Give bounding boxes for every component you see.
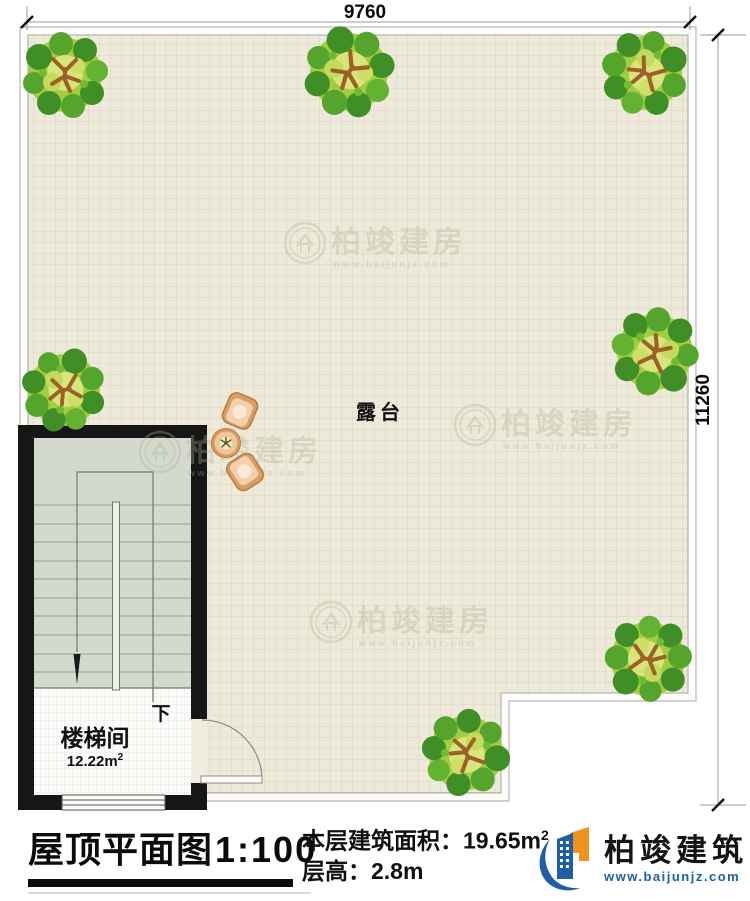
logo-building-blue bbox=[557, 833, 573, 879]
title-underline-bar bbox=[28, 879, 293, 887]
dimension-right-value: 11260 bbox=[693, 374, 714, 426]
watermark-icon bbox=[311, 602, 493, 648]
stair-divider bbox=[113, 502, 120, 690]
dimension-top: 9760 bbox=[21, 2, 696, 30]
dimension-top-value: 9760 bbox=[344, 2, 386, 23]
plan-title: 屋顶平面图1:100 bbox=[28, 821, 317, 873]
roof-plan-drawing: 柏竣建房 www.baijunjz.com bbox=[0, 0, 750, 815]
stair-room-area-sup: 2 bbox=[118, 752, 124, 763]
stair-room-label: 楼梯间 bbox=[61, 725, 130, 751]
company-logo-icon bbox=[536, 823, 600, 893]
plan-title-block: 屋顶平面图1:100 bbox=[28, 821, 317, 894]
down-label: 下 bbox=[151, 704, 170, 725]
door-leaf bbox=[201, 776, 262, 783]
floor-info-block: 本层建筑面积：19.65m2 层高：2.8m bbox=[302, 820, 549, 886]
company-name: 柏竣建筑 bbox=[604, 835, 748, 867]
floor-area-label: 本层建筑面积：19.65m bbox=[302, 828, 541, 854]
stair-room-area-value: 12.22m bbox=[67, 753, 118, 770]
watermark-icon bbox=[455, 405, 637, 451]
terrace-label: 露台 bbox=[356, 400, 404, 424]
company-logo-text: 柏竣建筑 www.baijunjz.com bbox=[604, 823, 748, 884]
floor-area-row: 本层建筑面积：19.65m2 bbox=[302, 820, 549, 856]
dimension-right: 11260 bbox=[693, 29, 746, 811]
company-logo: 柏竣建筑 www.baijunjz.com bbox=[536, 823, 748, 893]
company-url: www.baijunjz.com bbox=[604, 869, 748, 884]
stair-room-area: 12.22m2 bbox=[67, 752, 124, 770]
plan-title-text: 屋顶平面图 bbox=[28, 829, 213, 870]
floor-height-row: 层高：2.8m bbox=[302, 856, 549, 886]
title-underline-thin bbox=[28, 892, 311, 894]
table-icon bbox=[212, 429, 241, 458]
watermark-icon bbox=[285, 223, 467, 269]
legend-bar: 屋顶平面图1:100 本层建筑面积：19.65m2 层高：2.8m 柏竣建筑 w… bbox=[0, 815, 750, 901]
stairwell-window bbox=[62, 795, 165, 810]
